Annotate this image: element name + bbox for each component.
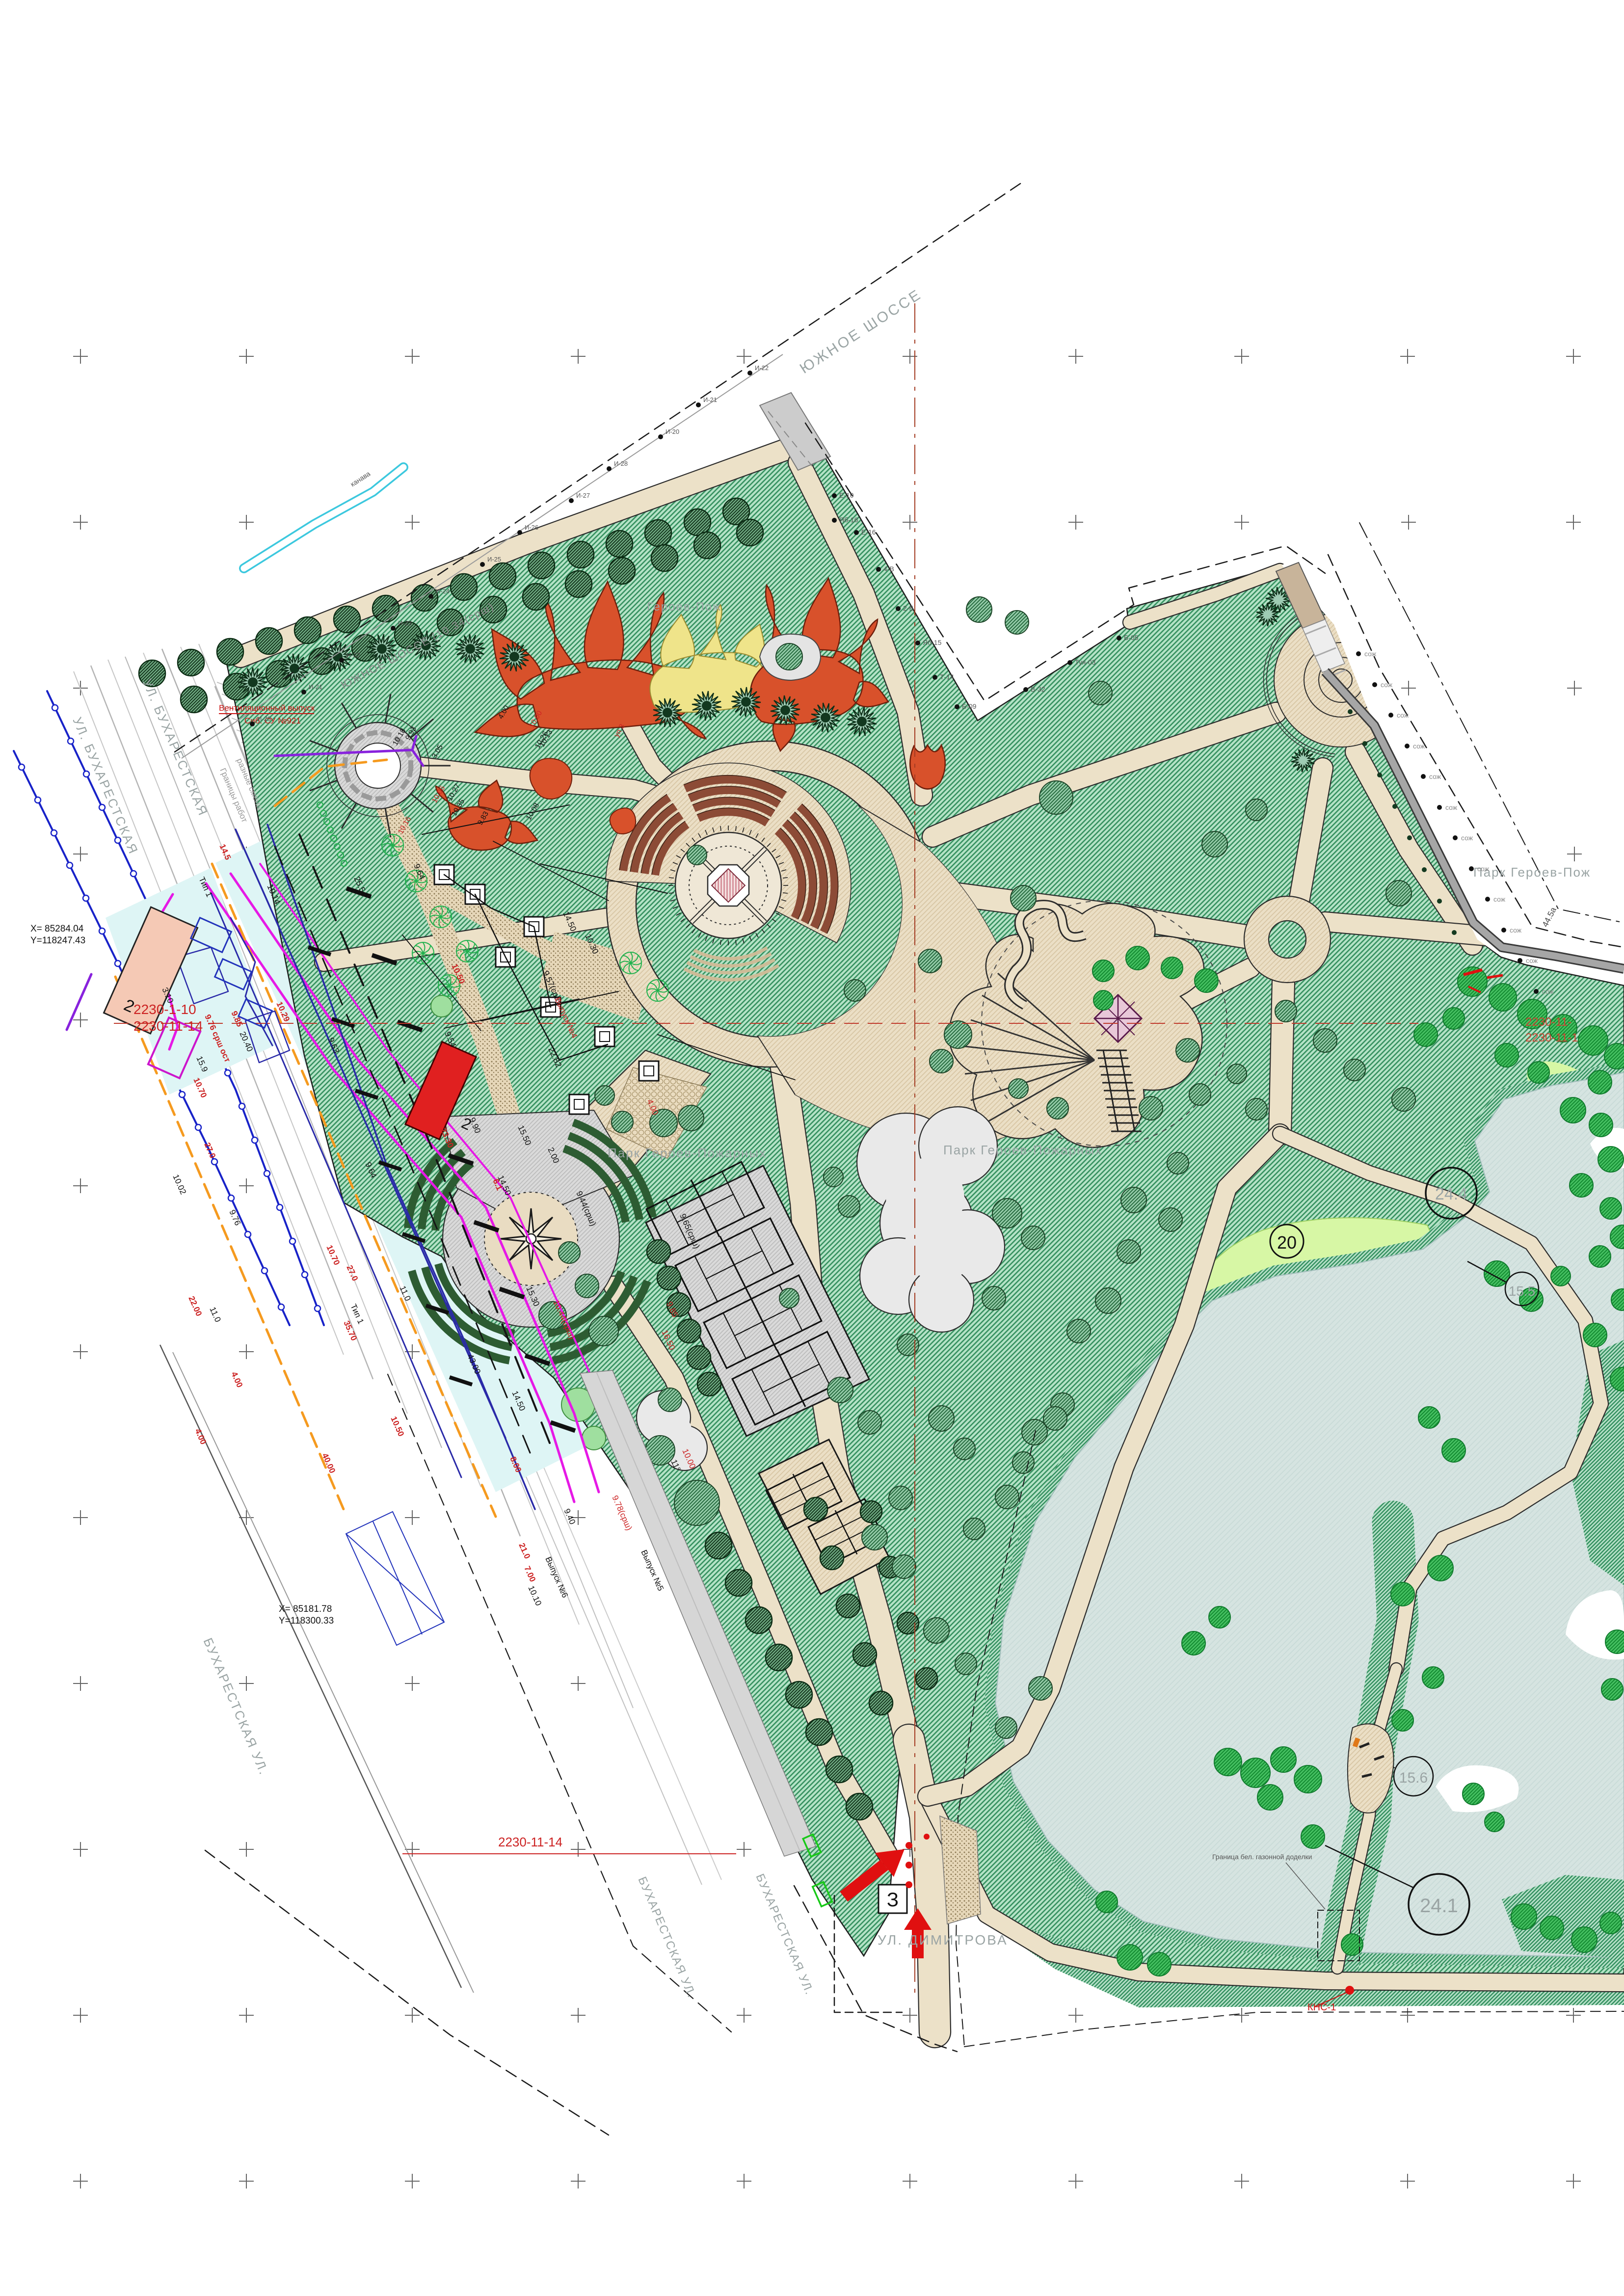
svg-text:сож: сож: [1461, 834, 1473, 842]
svg-text:Яб-16: Яб-16: [839, 516, 858, 524]
svg-text:И-25: И-25: [487, 556, 501, 563]
svg-text:сож: сож: [1510, 926, 1522, 934]
svg-text:И-28: И-28: [614, 460, 628, 467]
svg-text:2230-11-14: 2230-11-14: [133, 1018, 203, 1034]
svg-text:И-22: И-22: [755, 364, 769, 372]
svg-text:Парк Героев-Пож: Парк Героев-Пож: [1473, 865, 1591, 880]
svg-text:И-21: И-21: [703, 396, 717, 403]
svg-text:И-27: И-27: [576, 492, 590, 499]
svg-text:Туя-03: Туя-03: [1075, 658, 1096, 666]
svg-text:Б-09: Б-09: [962, 702, 977, 710]
svg-text:И-20: И-20: [257, 715, 271, 722]
svg-text:сож: сож: [1397, 711, 1409, 719]
svg-text:Т-14: Т-14: [940, 673, 954, 681]
svg-text:Y=118300.33: Y=118300.33: [279, 1616, 334, 1626]
svg-text:24.1: 24.1: [1420, 1895, 1458, 1917]
svg-text:сож: сож: [1526, 957, 1538, 964]
svg-text:Героев-Пож: Героев-Пож: [647, 600, 721, 614]
svg-text:Яб-15: Яб-15: [923, 639, 942, 646]
svg-text:20: 20: [1277, 1232, 1297, 1253]
svg-text:2-Б: 2-Б: [903, 604, 914, 612]
svg-text:Е-10: Е-10: [839, 491, 854, 499]
svg-text:УЛ. ДИМИТРОВА: УЛ. ДИМИТРОВА: [878, 1932, 1008, 1948]
svg-text:Граница бел. газонной доделки: Граница бел. газонной доделки: [1212, 1853, 1312, 1861]
svg-text:сож: сож: [1413, 742, 1425, 750]
svg-text:сож: сож: [1445, 803, 1458, 811]
svg-text:2230-11-: 2230-11-: [1525, 1015, 1571, 1029]
svg-text:И-24: И-24: [436, 587, 450, 595]
svg-text:И-26: И-26: [525, 524, 538, 531]
svg-text:Парк Героев-Пожарных: Парк Героев-Пожарных: [943, 1143, 1102, 1157]
svg-text:И-21: И-21: [309, 683, 322, 691]
svg-text:2230-11-14: 2230-11-14: [498, 1835, 562, 1849]
svg-text:X= 85181.78: X= 85181.78: [279, 1604, 332, 1614]
svg-text:И-22: И-22: [346, 651, 360, 659]
svg-text:сож: сож: [1477, 865, 1490, 873]
svg-text:15.5: 15.5: [1509, 1283, 1536, 1299]
svg-text:X= 85284.04: X= 85284.04: [30, 924, 84, 934]
svg-text:сож: сож: [1493, 895, 1506, 903]
svg-text:И-20: И-20: [666, 428, 679, 435]
svg-text:сож: сож: [1381, 681, 1393, 689]
svg-text:15.6: 15.6: [1399, 1770, 1428, 1786]
svg-text:И-23: И-23: [398, 619, 412, 627]
svg-text:Парк Героев-Пожарных: Парк Героев-Пожарных: [608, 1146, 767, 1160]
svg-text:Вентиляционный выпуск: Вентиляционный выпуск: [219, 703, 315, 713]
svg-text:4-В: 4-В: [883, 565, 894, 573]
svg-text:Е-16: Е-16: [861, 528, 876, 536]
svg-text:24.4: 24.4: [1435, 1185, 1467, 1203]
svg-text:сож: сож: [1542, 988, 1554, 995]
svg-text:сож: сож: [1364, 650, 1377, 658]
svg-text:Y=118247.43: Y=118247.43: [30, 935, 85, 946]
svg-text:2230-11-1: 2230-11-1: [1525, 1031, 1578, 1044]
svg-text:В-32: В-32: [1031, 685, 1045, 693]
svg-text:2230-1-10: 2230-1-10: [133, 1002, 196, 1017]
svg-text:Б-05: Б-05: [1124, 634, 1139, 641]
svg-text:З: З: [887, 1889, 899, 1911]
svg-text:сож: сож: [1429, 773, 1441, 780]
